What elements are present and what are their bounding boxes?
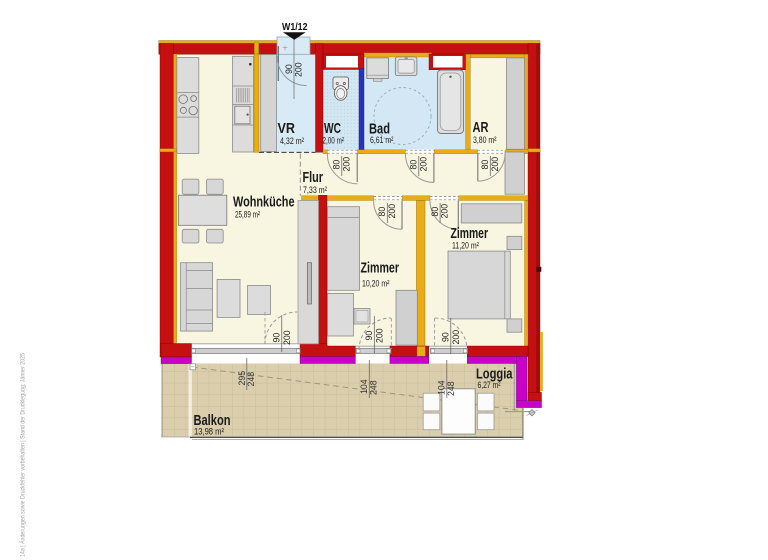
svg-text:6,27 m²: 6,27 m² <box>478 379 501 390</box>
svg-text:200: 200 <box>418 157 428 172</box>
svg-text:200: 200 <box>294 62 304 77</box>
svg-text:248: 248 <box>369 380 379 395</box>
svg-text:Zimmer: Zimmer <box>361 261 400 277</box>
svg-text:80: 80 <box>409 160 419 170</box>
svg-text:80: 80 <box>332 160 342 170</box>
svg-text:80: 80 <box>480 160 490 170</box>
svg-text:200: 200 <box>387 204 397 219</box>
svg-text:14a | Änderungen sowie Druckfe: 14a | Änderungen sowie Druckfehler vorbe… <box>19 353 27 557</box>
svg-text:6,61 m²: 6,61 m² <box>370 134 394 145</box>
svg-text:10,20 m²: 10,20 m² <box>362 278 390 289</box>
svg-text:200: 200 <box>282 330 292 345</box>
svg-text:80: 80 <box>377 207 387 217</box>
svg-text:104: 104 <box>437 380 447 395</box>
svg-text:90: 90 <box>364 331 374 341</box>
svg-text:200: 200 <box>374 328 384 343</box>
svg-text:25,89 m²: 25,89 m² <box>235 209 260 220</box>
svg-text:13,98 m²: 13,98 m² <box>194 426 224 437</box>
svg-text:2,00 m²: 2,00 m² <box>323 135 345 146</box>
svg-text:11,20 m²: 11,20 m² <box>452 240 479 251</box>
svg-text:90: 90 <box>284 64 294 74</box>
svg-text:200: 200 <box>440 204 450 219</box>
svg-text:200: 200 <box>451 330 461 345</box>
svg-text:104: 104 <box>359 379 369 394</box>
svg-text:7,33 m²: 7,33 m² <box>303 184 327 195</box>
svg-text:3,80 m²: 3,80 m² <box>473 134 497 145</box>
svg-text:200: 200 <box>341 157 351 172</box>
svg-text:248: 248 <box>246 372 256 387</box>
svg-text:90: 90 <box>271 333 281 343</box>
svg-text:248: 248 <box>446 381 456 396</box>
svg-text:80: 80 <box>430 207 440 217</box>
svg-text:200: 200 <box>490 157 500 172</box>
svg-text:90: 90 <box>440 332 450 342</box>
svg-text:W1/12: W1/12 <box>282 22 308 33</box>
svg-text:4,32 m²: 4,32 m² <box>280 135 304 146</box>
